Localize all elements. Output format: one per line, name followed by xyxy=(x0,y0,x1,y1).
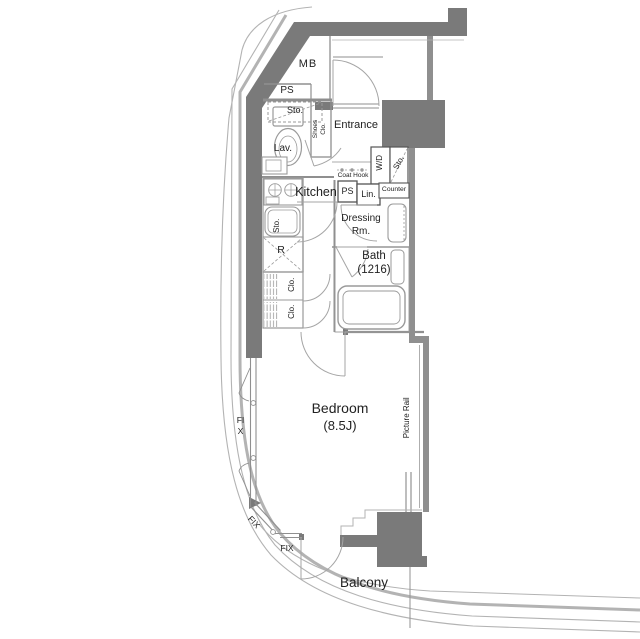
fix-left-joint-2 xyxy=(251,456,256,461)
label-lav: Lav. xyxy=(266,143,300,155)
label-balcony: Balcony xyxy=(334,575,394,591)
pillar-top-right xyxy=(382,100,445,148)
closet-upper-hangers xyxy=(264,274,279,299)
coat-hook-dot-3 xyxy=(361,169,363,171)
label-entrance: Entrance xyxy=(331,119,381,132)
wall-bedroom-side xyxy=(423,343,429,512)
label-refrigerator: R xyxy=(271,244,291,257)
floor-plan: MB PS Sto. Lav. Shoes Clo. Entrance W/D … xyxy=(0,0,640,639)
label-picture-rail: Picture Rail xyxy=(402,388,412,448)
closet-upper-door-arc xyxy=(303,274,330,301)
coat-hook-dot-1 xyxy=(341,169,343,171)
label-bath-line2: (1216) xyxy=(343,264,405,278)
closet-lower-door-arc xyxy=(303,301,330,328)
label-coat-hook: Coat Hook xyxy=(335,172,371,180)
lav-hand-sink-basin xyxy=(266,160,281,171)
label-fix-left: FIX xyxy=(236,415,245,438)
balcony-edge-line xyxy=(259,524,640,598)
label-linen: Lin. xyxy=(357,189,380,200)
label-ps-top: PS xyxy=(263,85,311,97)
bathtub-inner xyxy=(343,291,400,324)
label-shoes-closet-line2: Clo. xyxy=(320,104,328,154)
label-dressing-line1: Dressing xyxy=(330,213,392,226)
label-bedroom: Bedroom (8.5J) xyxy=(285,400,395,434)
floor-plan-drawing xyxy=(0,0,640,639)
label-kitchen-storage: Sto. xyxy=(272,210,282,242)
grill xyxy=(266,197,279,204)
fix-left-joint-1 xyxy=(251,401,256,406)
closet-lower-hangers xyxy=(264,302,279,327)
wall-jog xyxy=(409,336,429,343)
wall-bath-side xyxy=(409,148,415,342)
label-ps-mid: PS xyxy=(338,186,357,197)
fix-left-tick-bottom xyxy=(239,463,250,496)
label-bedroom-line2: (8.5J) xyxy=(285,418,395,434)
label-counter: Counter xyxy=(379,186,409,194)
wall-above-pillar xyxy=(427,36,433,100)
label-shoes-closet-line1: Shoes xyxy=(312,104,320,154)
bedroom-door-arc xyxy=(301,332,345,376)
label-dressing-room: Dressing Rm. xyxy=(330,213,392,238)
label-bath: Bath (1216) xyxy=(343,250,405,278)
fix-diagonal-joint xyxy=(271,530,276,535)
label-dressing-line2: Rm. xyxy=(330,226,392,239)
label-kitchen: Kitchen xyxy=(294,185,338,200)
entrance-door-arc xyxy=(333,60,379,106)
label-washer-dryer: W/D xyxy=(375,145,385,181)
coat-hook-dot-2 xyxy=(351,169,353,171)
label-mb: MB xyxy=(288,58,328,71)
label-closet-lower: Clo. xyxy=(287,296,297,328)
label-bath-line1: Bath xyxy=(343,250,405,264)
label-bedroom-line1: Bedroom xyxy=(285,400,395,418)
label-fix-bottom: FIX xyxy=(275,543,299,553)
label-shoes-closet: Shoes Clo. xyxy=(312,104,330,154)
